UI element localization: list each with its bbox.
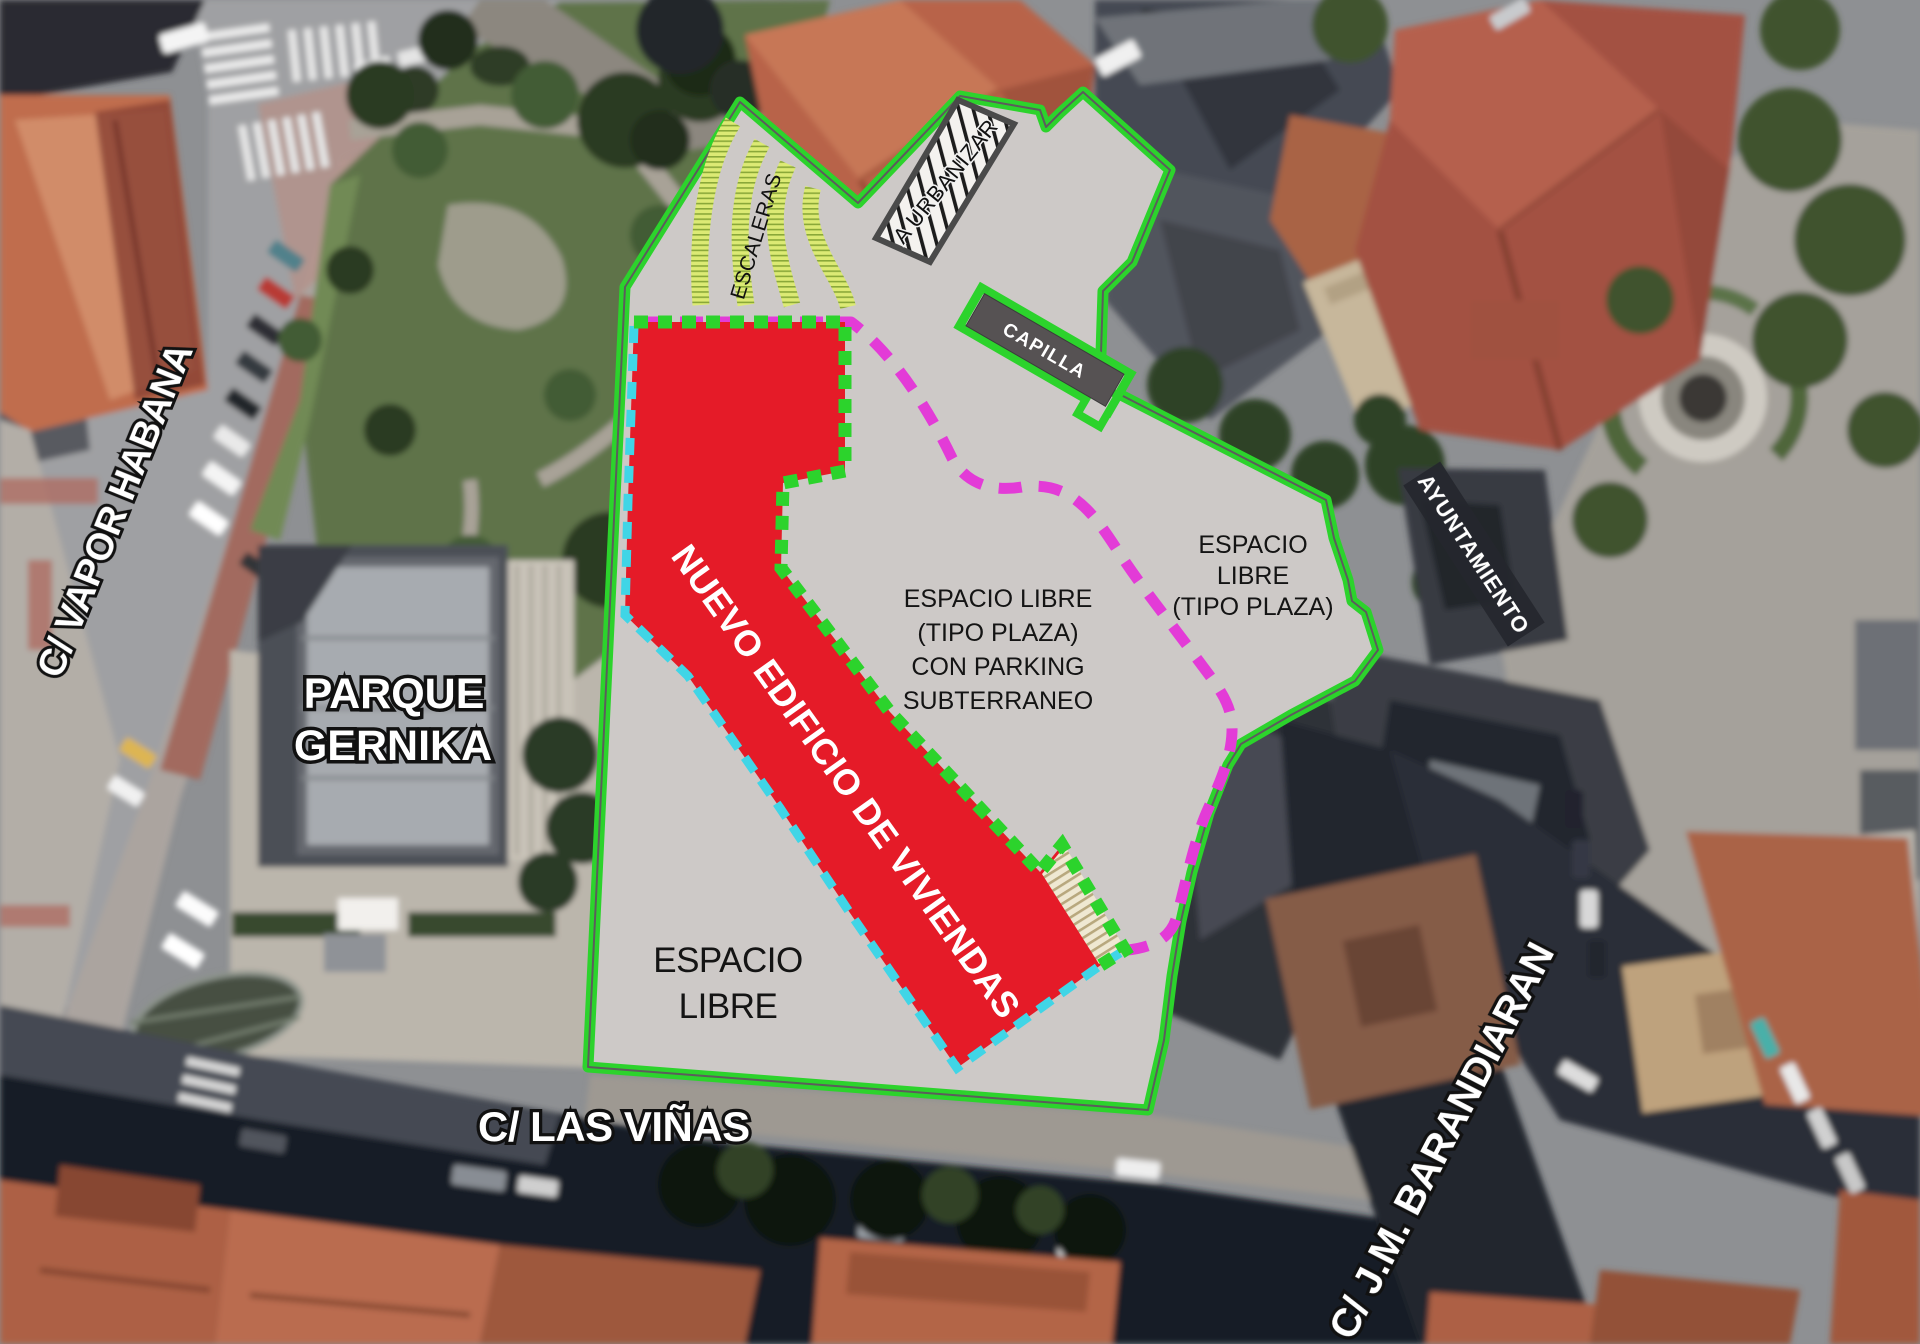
svg-text:GERNIKA: GERNIKA [294, 722, 492, 770]
svg-text:ESPACIO: ESPACIO [653, 941, 803, 980]
svg-text:C/ LAS VIÑAS: C/ LAS VIÑAS [478, 1103, 750, 1150]
svg-text:(TIPO PLAZA): (TIPO PLAZA) [917, 619, 1078, 647]
svg-text:CON PARKING: CON PARKING [911, 653, 1084, 681]
svg-text:LIBRE: LIBRE [679, 987, 778, 1026]
svg-text:PARQUE: PARQUE [304, 670, 485, 718]
svg-text:SUBTERRANEO: SUBTERRANEO [903, 687, 1093, 715]
svg-text:ESPACIO LIBRE: ESPACIO LIBRE [904, 585, 1093, 613]
svg-text:ESPACIO: ESPACIO [1198, 531, 1307, 559]
svg-text:LIBRE: LIBRE [1217, 562, 1289, 590]
svg-text:(TIPO PLAZA): (TIPO PLAZA) [1172, 593, 1333, 621]
